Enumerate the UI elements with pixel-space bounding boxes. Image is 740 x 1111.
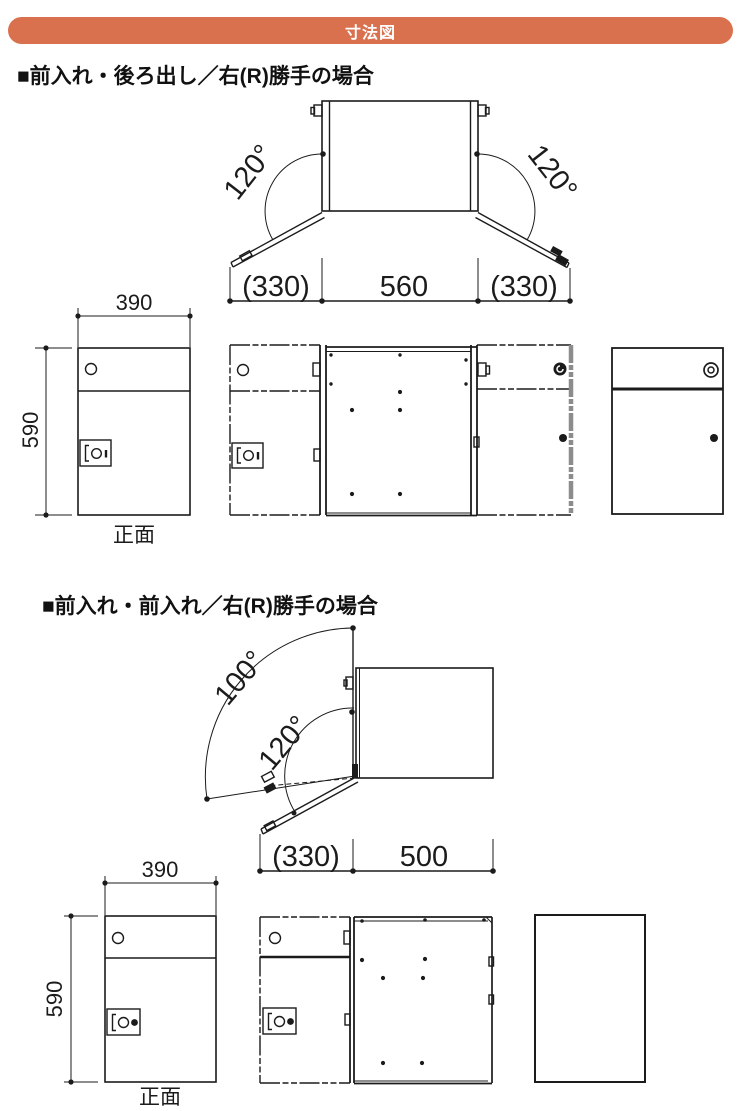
knob-icon — [710, 434, 718, 442]
keyhole-icon — [270, 933, 281, 944]
door-latch-icon — [262, 771, 275, 782]
angle-label-left: 120° — [218, 139, 280, 206]
section2-top-view: 100° 120° — [204, 625, 496, 874]
dim-330: (330) — [272, 841, 340, 873]
rear-panel — [535, 915, 645, 1082]
hinge-icon — [478, 363, 486, 376]
keyhole-icon — [238, 365, 249, 376]
lock-plate-icon — [232, 443, 263, 468]
door-latch-icon — [264, 782, 277, 793]
front-caption: 正面 — [113, 524, 155, 547]
left-door-open — [231, 213, 325, 268]
section1-open-view — [230, 345, 571, 516]
dim-height: 590 — [42, 981, 67, 1018]
opened-front-door — [230, 345, 326, 515]
knob-icon — [559, 434, 567, 442]
opened-door — [261, 771, 358, 834]
dim-500: 500 — [400, 841, 448, 873]
section1-front-view: 390 590 正面 — [18, 290, 193, 547]
angle-label-inner: 120° — [253, 710, 316, 777]
section1-top-view: 120° 120° (330) 560 (330) — [218, 101, 583, 304]
dim-height: 590 — [18, 412, 43, 449]
lock-plate-icon — [80, 440, 111, 466]
cabinet-interior — [354, 917, 494, 1084]
front-caption: 正面 — [139, 1086, 181, 1109]
dimension-line: (330) 560 (330) — [227, 258, 573, 304]
keyhole-icon — [86, 364, 97, 375]
section2-open-view — [260, 915, 645, 1084]
angle-label-right: 120° — [521, 139, 583, 206]
cylinder-lock-icon — [554, 363, 567, 376]
opened-rear-door — [477, 345, 571, 515]
dim-width: 390 — [116, 290, 153, 315]
cylinder-lock-icon — [704, 363, 718, 377]
drawing-layer: 120° 120° (330) 560 (330) 390 — [0, 0, 740, 1111]
angle-label-outer: 100° — [209, 645, 272, 712]
dim-330-left: (330) — [242, 271, 310, 303]
lock-plate-icon — [107, 1009, 140, 1035]
section1-rear-view — [612, 348, 723, 514]
dim-330-right: (330) — [490, 271, 558, 303]
dimension-diagram-page: 寸法図 ■前入れ・後ろ出し／右(R)勝手の場合 ■前入れ・前入れ／右(R)勝手の… — [0, 0, 740, 1111]
door-latch-icon — [550, 246, 563, 257]
right-door-open — [476, 213, 570, 268]
hinge-icon — [313, 363, 320, 376]
lock-plate-icon — [263, 1008, 296, 1034]
section2-front-view: 390 590 正面 — [42, 857, 219, 1109]
dim-560: 560 — [380, 271, 428, 303]
door-latch-icon — [240, 251, 252, 261]
hinge-icon — [311, 105, 489, 116]
keyhole-icon — [113, 933, 124, 944]
dimension-line: (330) 500 — [257, 834, 496, 874]
opened-front-door — [260, 917, 354, 1083]
hinge-icon — [486, 366, 490, 374]
cabinet-interior — [326, 345, 490, 516]
dim-width: 390 — [142, 857, 179, 882]
